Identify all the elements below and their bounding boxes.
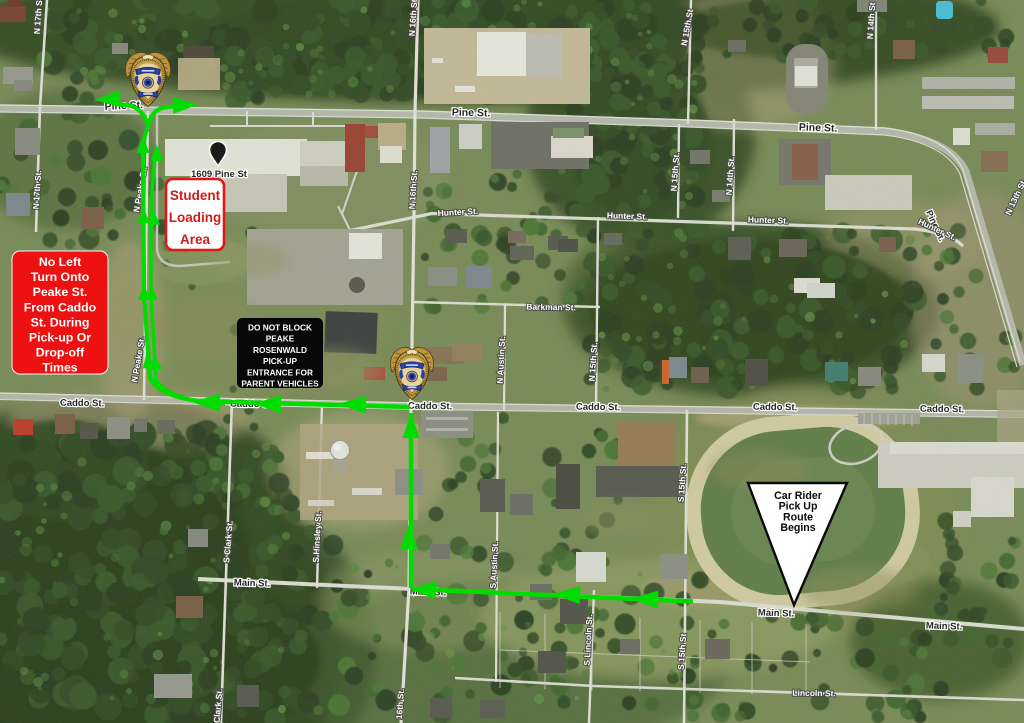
svg-text:Student: Student <box>170 188 221 203</box>
svg-text:Caddo St.: Caddo St. <box>60 398 105 410</box>
svg-text:From Caddo: From Caddo <box>24 300 97 314</box>
svg-text:Hunter St.: Hunter St. <box>437 206 478 218</box>
svg-text:Times: Times <box>42 361 77 375</box>
svg-text:Caddo St.: Caddo St. <box>576 402 621 414</box>
svg-text:No Left: No Left <box>39 255 81 269</box>
svg-text:Peake St.: Peake St. <box>33 285 88 299</box>
svg-text:St. During: St. During <box>31 315 90 329</box>
svg-text:Pick-up Or: Pick-up Or <box>29 331 91 345</box>
svg-text:PEAKE: PEAKE <box>266 334 295 344</box>
svg-text:Barkman St.: Barkman St. <box>526 302 576 313</box>
svg-text:Hunter St.: Hunter St. <box>607 210 648 221</box>
svg-text:Hunter St.: Hunter St. <box>748 214 789 225</box>
svg-text:ENTRANCE FOR: ENTRANCE FOR <box>247 367 313 377</box>
svg-text:Caddo St.: Caddo St. <box>753 402 798 414</box>
svg-text:ROSENWALD: ROSENWALD <box>253 345 307 355</box>
svg-text:Begins: Begins <box>780 522 815 534</box>
svg-text:Pine St.: Pine St. <box>452 106 491 119</box>
svg-text:PICK-UP: PICK-UP <box>263 356 298 366</box>
svg-text:PARENT VEHICLES: PARENT VEHICLES <box>241 379 319 389</box>
svg-text:Main St.: Main St. <box>234 577 271 589</box>
svg-text:DO NOT BLOCK: DO NOT BLOCK <box>248 323 312 333</box>
svg-text:Lincoln St.: Lincoln St. <box>792 688 836 699</box>
svg-text:Caddo St.: Caddo St. <box>408 401 453 413</box>
svg-text:Area: Area <box>180 232 211 247</box>
svg-text:Turn Onto: Turn Onto <box>31 270 90 284</box>
svg-text:Caddo St.: Caddo St. <box>920 404 965 416</box>
svg-text:Drop-off: Drop-off <box>36 346 85 360</box>
svg-text:16th St.: 16th St. <box>394 688 406 719</box>
svg-text:Main St.: Main St. <box>926 620 963 632</box>
svg-text:Pine St.: Pine St. <box>799 121 838 134</box>
svg-text:Loading: Loading <box>169 210 222 225</box>
svg-text:Main St.: Main St. <box>758 607 795 619</box>
